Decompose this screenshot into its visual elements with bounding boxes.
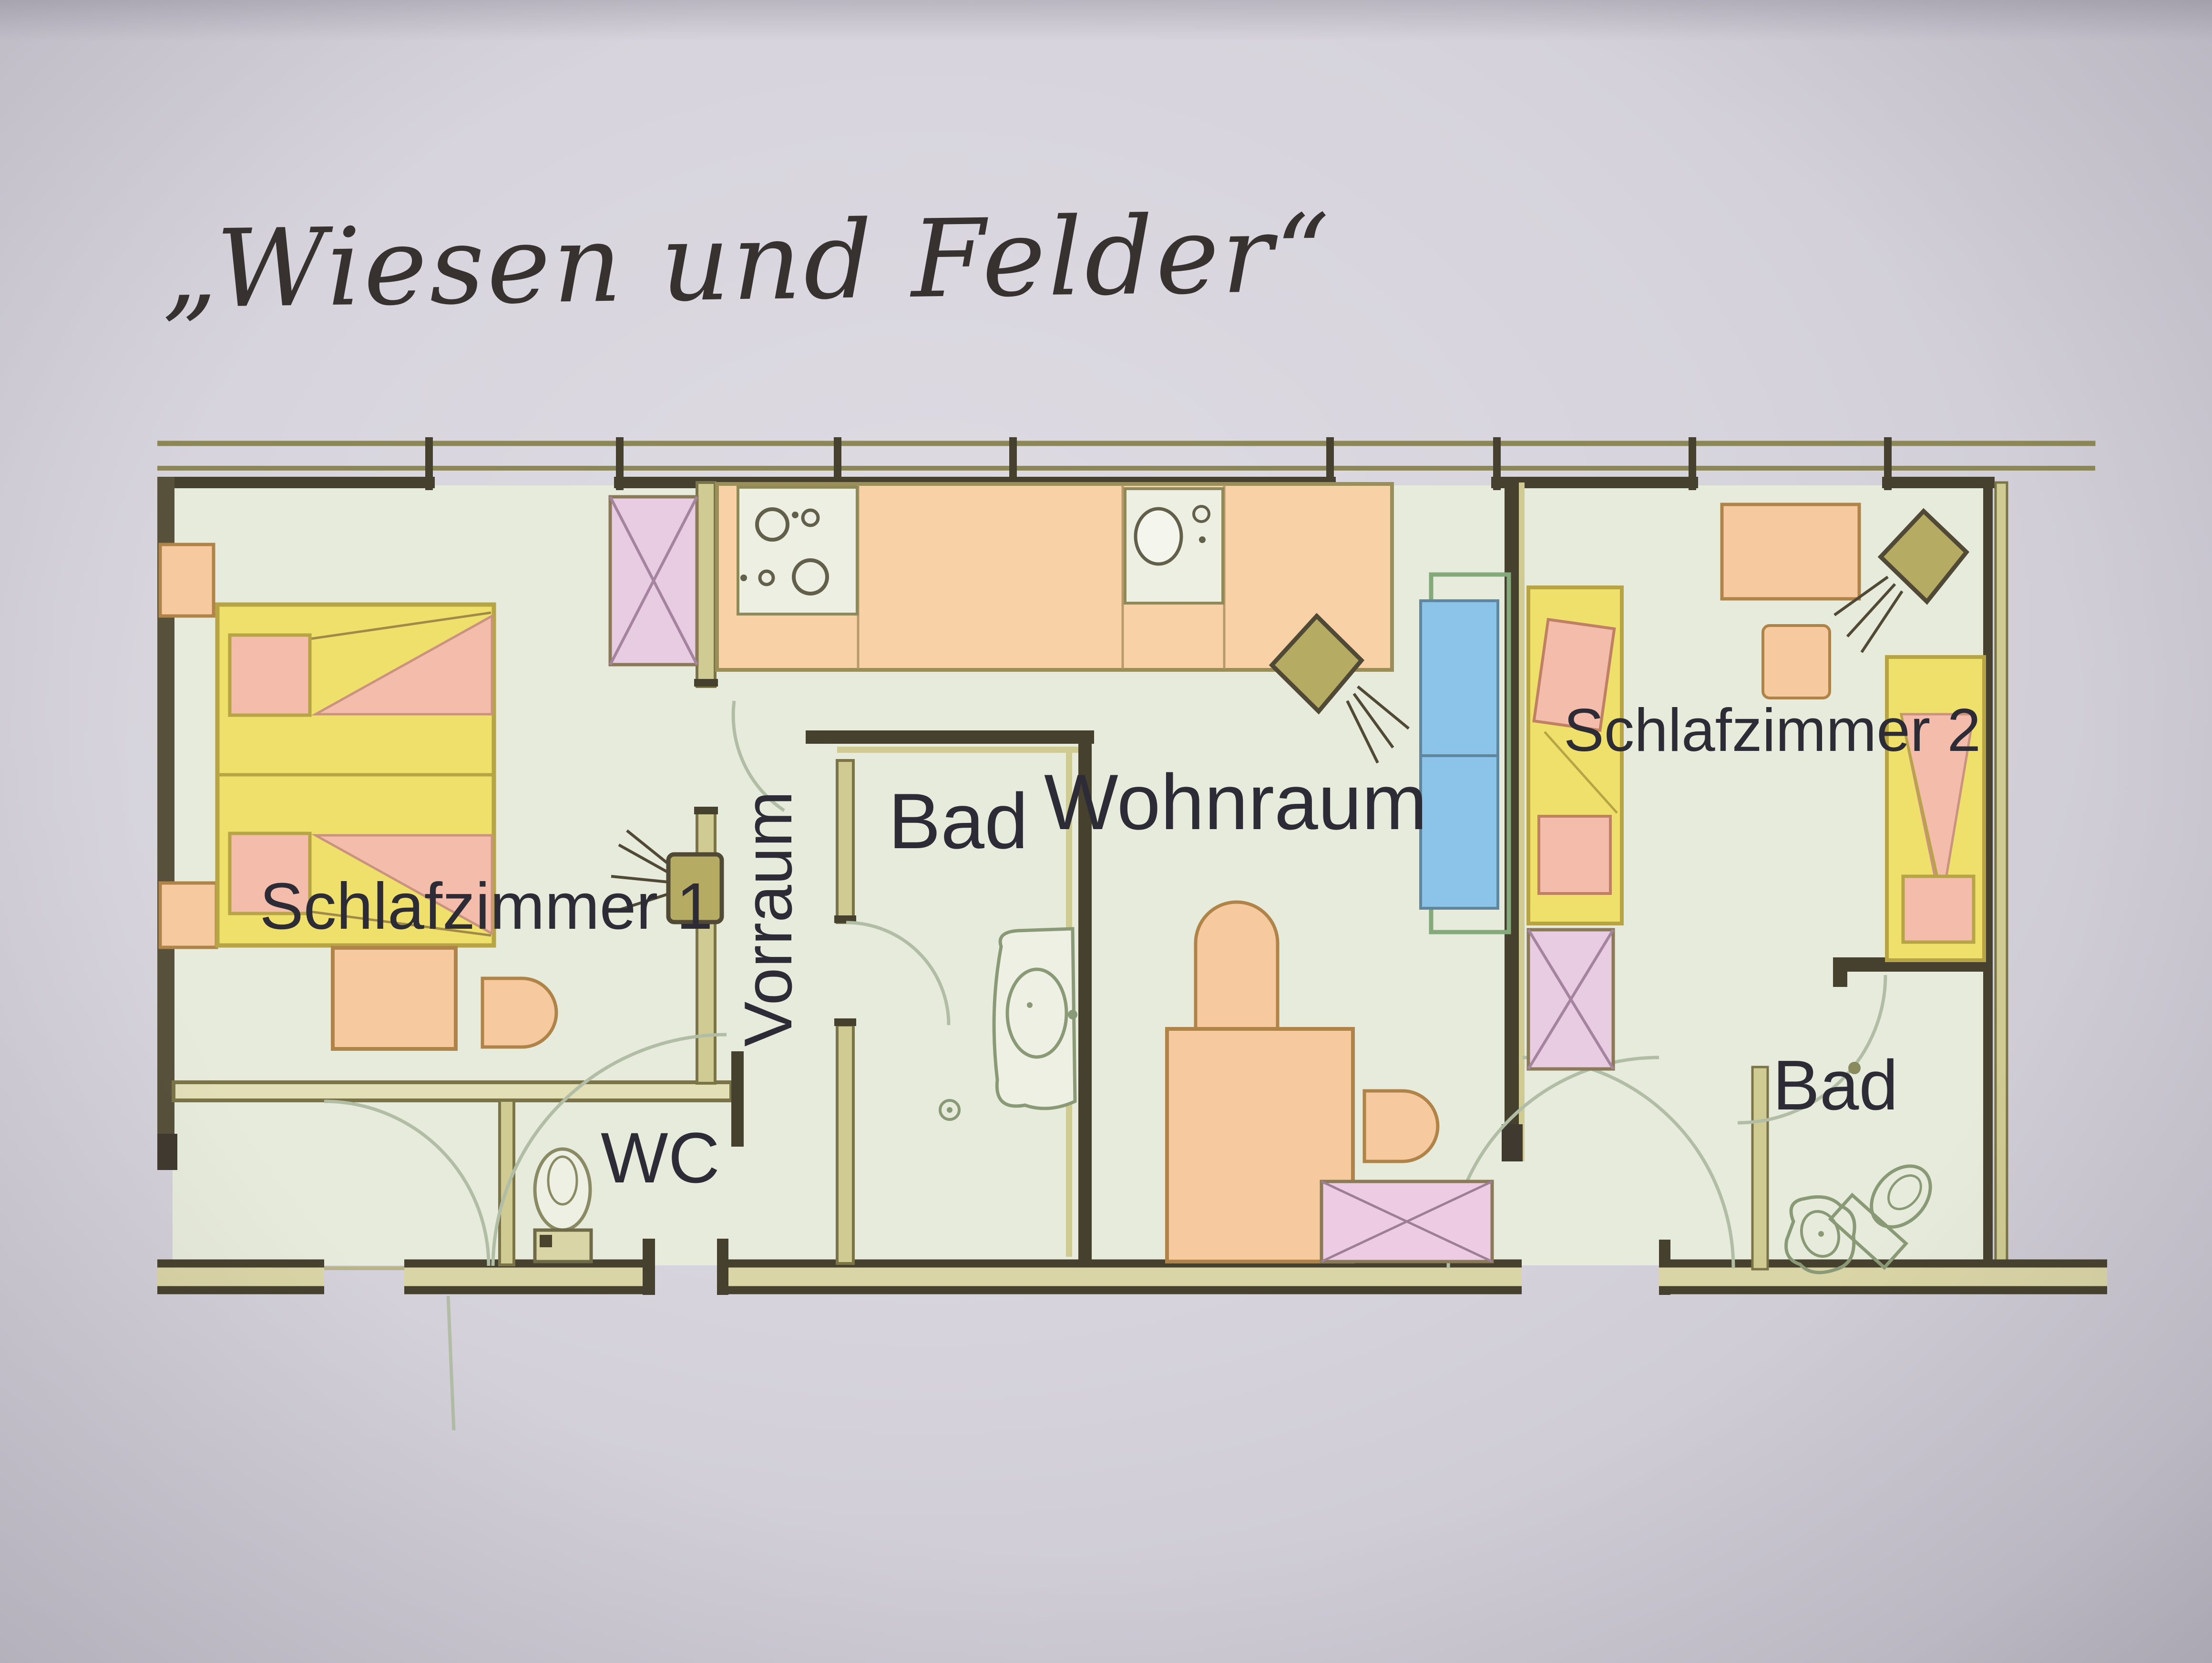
room-label-wohnraum: Wohnraum	[1044, 757, 1406, 847]
chair-icon	[1364, 1091, 1438, 1161]
bottom-wall-segment	[157, 1263, 324, 1290]
floorplan-title: „Wiesen und Felder“	[161, 183, 1317, 356]
nightstand-icon	[160, 883, 216, 947]
photo-of-floorplan: { "photo": { "title": "„Wiesen und Felde…	[0, 0, 2212, 1663]
bathroom-sink-icon	[994, 929, 1077, 1109]
wc-partition-wall	[500, 1100, 514, 1265]
room-label-schlafzimmer-2: Schlafzimmer 2	[1564, 695, 1964, 765]
stove-icon	[738, 487, 857, 614]
room-label-wc: WC	[594, 1117, 727, 1199]
nightstand-icon	[160, 544, 214, 616]
room-label-vorraum: Vorraum	[729, 766, 808, 1071]
chair-icon	[482, 978, 556, 1047]
wardrobe-icon	[1528, 930, 1613, 1069]
bench-icon	[1321, 1181, 1492, 1262]
room-label-bad-1: Bad	[872, 776, 1044, 866]
toilet-icon	[535, 1149, 591, 1262]
desk-icon	[333, 948, 456, 1049]
wardrobe-icon	[610, 497, 697, 665]
kitchen-sink-icon	[1125, 489, 1223, 603]
room-label-schlafzimmer-1: Schlafzimmer 1	[257, 869, 715, 944]
chair-icon	[1763, 626, 1830, 698]
right-wall	[1983, 482, 2007, 1268]
armchair-icon	[1196, 902, 1278, 1030]
shower-drain-dot	[947, 1107, 952, 1113]
sofa-icon	[1421, 575, 1509, 932]
schlafzimmer2-left-wall	[1502, 482, 1525, 1161]
table-icon	[1722, 504, 1859, 599]
room-label-bad-2: Bad	[1764, 1045, 1907, 1126]
top-wall	[157, 441, 2093, 486]
